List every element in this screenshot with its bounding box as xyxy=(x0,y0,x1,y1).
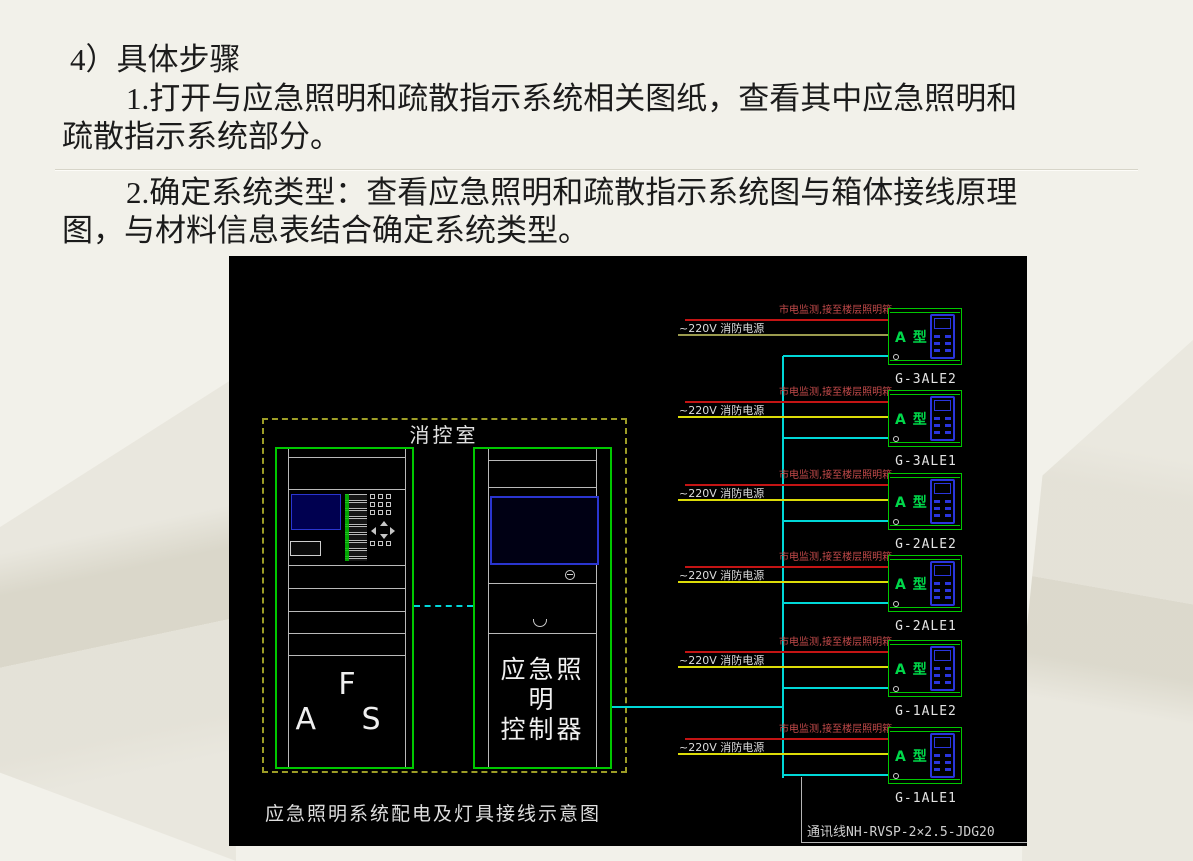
panel-line xyxy=(288,633,406,634)
comm-branch-wire xyxy=(783,437,888,439)
keypad-row xyxy=(934,667,951,670)
keypad-row xyxy=(934,596,951,599)
fire-power-wire xyxy=(678,416,888,418)
device-icon xyxy=(930,733,955,778)
comm-trunk-horizontal-wire xyxy=(612,706,783,708)
step-1-line-1: 1.打开与应急照明和疏散指示系统相关图纸，查看其中应急照明和 xyxy=(62,80,1137,118)
mains-monitor-label: 市电监测,接至楼层照明箱 xyxy=(779,548,891,563)
comm-label-leader-vertical xyxy=(801,777,802,843)
button-icon xyxy=(370,510,375,515)
keypad-row xyxy=(934,761,951,764)
keypad-row xyxy=(934,681,951,684)
comm-branch-wire xyxy=(783,520,888,522)
controller-label-line-2: 控制器 xyxy=(488,715,597,745)
box-type-label: A 型 xyxy=(895,659,928,679)
controller-display-screen xyxy=(490,496,599,565)
lighting-distribution-box: A 型 xyxy=(888,473,962,530)
button-icon xyxy=(370,494,375,499)
button-icon xyxy=(378,494,383,499)
comm-branch-wire xyxy=(783,687,888,689)
device-icon xyxy=(930,646,955,691)
panel-line xyxy=(288,565,406,566)
device-screen xyxy=(934,565,951,576)
connection-dot-icon xyxy=(893,686,899,692)
button-icon xyxy=(386,510,391,515)
panel-line xyxy=(288,588,406,589)
keypad-row xyxy=(934,500,951,503)
connection-dot-icon xyxy=(893,354,899,360)
arrow-left-icon xyxy=(371,527,376,535)
connection-dot-icon xyxy=(893,601,899,607)
mains-monitor-label: 市电监测,接至楼层照明箱 xyxy=(779,301,891,316)
device-icon xyxy=(930,314,955,359)
fire-power-wire xyxy=(678,499,888,501)
button-icon xyxy=(378,510,383,515)
box-id-label: G-2ALE1 xyxy=(888,619,964,634)
mains-monitor-label: 市电监测,接至楼层照明箱 xyxy=(779,633,891,648)
fan-watermark-left xyxy=(0,370,236,861)
panel-line xyxy=(488,633,597,634)
keypad-row xyxy=(934,768,951,771)
panel-line xyxy=(488,583,597,584)
panel-line xyxy=(288,611,406,612)
button-icon xyxy=(386,541,391,546)
panel-line xyxy=(488,460,597,461)
comm-cable-label: 通讯线NH-RVSP-2×2.5-JDG20 xyxy=(807,821,995,840)
lighting-distribution-box: A 型 xyxy=(888,390,962,447)
comm-branch-wire xyxy=(783,774,888,776)
panel-line xyxy=(488,487,597,488)
comm-label-leader-horizontal xyxy=(801,842,1027,843)
step-1-paragraph: 1.打开与应急照明和疏散指示系统相关图纸，查看其中应急照明和 疏散指示系统部分。 xyxy=(62,80,1137,156)
slide-heading: 4）具体步骤 xyxy=(70,34,241,79)
diagram-title: 应急照明系统配电及灯具接线示意图 xyxy=(265,799,601,826)
comm-branch-wire xyxy=(783,602,888,604)
keypad-row xyxy=(934,342,951,345)
fas-display-screen xyxy=(291,494,341,530)
keypad-row xyxy=(934,589,951,592)
mains-monitor-label: 市电监测,接至楼层照明箱 xyxy=(779,720,891,735)
box-type-label: A 型 xyxy=(895,746,928,766)
divider-line xyxy=(55,169,1138,171)
controller-label-line-1: 应急照明 xyxy=(488,655,597,715)
device-icon xyxy=(930,396,955,441)
mains-monitor-label: 市电监测,接至楼层照明箱 xyxy=(779,466,891,481)
button-icon xyxy=(370,502,375,507)
arrow-down-icon xyxy=(380,534,388,539)
comm-branch-wire xyxy=(783,355,888,357)
emergency-lighting-controller-cabinet: 应急照明 控制器 xyxy=(473,447,612,769)
step-1-line-2: 疏散指示系统部分。 xyxy=(62,118,1137,156)
fan-watermark-right xyxy=(1022,340,1193,861)
box-type-label: A 型 xyxy=(895,409,928,429)
keypad-row xyxy=(934,514,951,517)
step-2-line-2: 图，与材料信息表结合确定系统类型。 xyxy=(62,212,1137,250)
lighting-distribution-box: A 型 xyxy=(888,640,962,697)
keypad-row xyxy=(934,349,951,352)
controller-cabinet-label: 应急照明 控制器 xyxy=(488,655,597,745)
lighting-distribution-box: A 型 xyxy=(888,727,962,784)
box-type-label: A 型 xyxy=(895,574,928,594)
box-id-label: G-1ALE1 xyxy=(888,791,964,806)
device-icon xyxy=(930,561,955,606)
step-2-paragraph: 2.确定系统类型：查看应急照明和疏散指示系统图与箱体接线原理 图，与材料信息表结… xyxy=(62,174,1137,250)
connection-dot-icon xyxy=(893,436,899,442)
fas-button-row xyxy=(370,541,391,546)
presentation-slide: 4）具体步骤 1.打开与应急照明和疏散指示系统相关图纸，查看其中应急照明和 疏散… xyxy=(0,0,1193,861)
device-screen xyxy=(934,650,951,661)
connection-dot-icon xyxy=(893,773,899,779)
arrow-right-icon xyxy=(390,527,395,535)
keypad-row xyxy=(934,754,951,757)
fas-cabinet: F A S xyxy=(275,447,414,769)
cabinet-link-dashed-wire xyxy=(414,605,473,607)
fas-button-grid xyxy=(370,494,391,515)
keypad-row xyxy=(934,417,951,420)
button-icon xyxy=(378,541,383,546)
panel-line xyxy=(288,457,406,458)
step-2-line-1: 2.确定系统类型：查看应急照明和疏散指示系统图与箱体接线原理 xyxy=(62,174,1137,212)
fas-cabinet-label: F A S xyxy=(288,667,406,737)
fire-power-wire xyxy=(678,753,888,755)
fire-power-wire xyxy=(678,666,888,668)
box-id-label: G-3ALE2 xyxy=(888,372,964,387)
button-icon xyxy=(386,494,391,499)
device-screen xyxy=(934,737,951,748)
keypad-row xyxy=(934,335,951,338)
panel-line xyxy=(288,489,406,490)
fas-keypad xyxy=(370,494,398,554)
fas-small-panel xyxy=(290,541,321,556)
fire-power-wire xyxy=(678,334,888,336)
mains-monitor-label: 市电监测,接至楼层照明箱 xyxy=(779,383,891,398)
button-icon xyxy=(378,502,383,507)
fire-power-wire xyxy=(678,581,888,583)
fas-indicator-strips xyxy=(345,494,367,561)
keypad-row xyxy=(934,674,951,677)
lighting-distribution-box: A 型 xyxy=(888,308,962,365)
keypad-row xyxy=(934,507,951,510)
minus-circle-icon xyxy=(565,570,575,580)
keypad-row xyxy=(934,424,951,427)
fire-control-room-label: 消控室 xyxy=(379,419,509,448)
box-id-label: G-3ALE1 xyxy=(888,454,964,469)
button-icon xyxy=(386,502,391,507)
box-type-label: A 型 xyxy=(895,327,928,347)
box-id-label: G-2ALE2 xyxy=(888,537,964,552)
lighting-distribution-box: A 型 xyxy=(888,555,962,612)
device-screen xyxy=(934,483,951,494)
button-icon xyxy=(370,541,375,546)
cad-wiring-diagram: 消控室 xyxy=(229,256,1027,846)
arrow-up-icon xyxy=(380,521,388,526)
device-screen xyxy=(934,318,951,329)
panel-line xyxy=(288,655,406,656)
box-id-label: G-1ALE2 xyxy=(888,704,964,719)
box-type-label: A 型 xyxy=(895,492,928,512)
connection-dot-icon xyxy=(893,519,899,525)
device-screen xyxy=(934,400,951,411)
keypad-row xyxy=(934,431,951,434)
keypad-row xyxy=(934,582,951,585)
device-icon xyxy=(930,479,955,524)
